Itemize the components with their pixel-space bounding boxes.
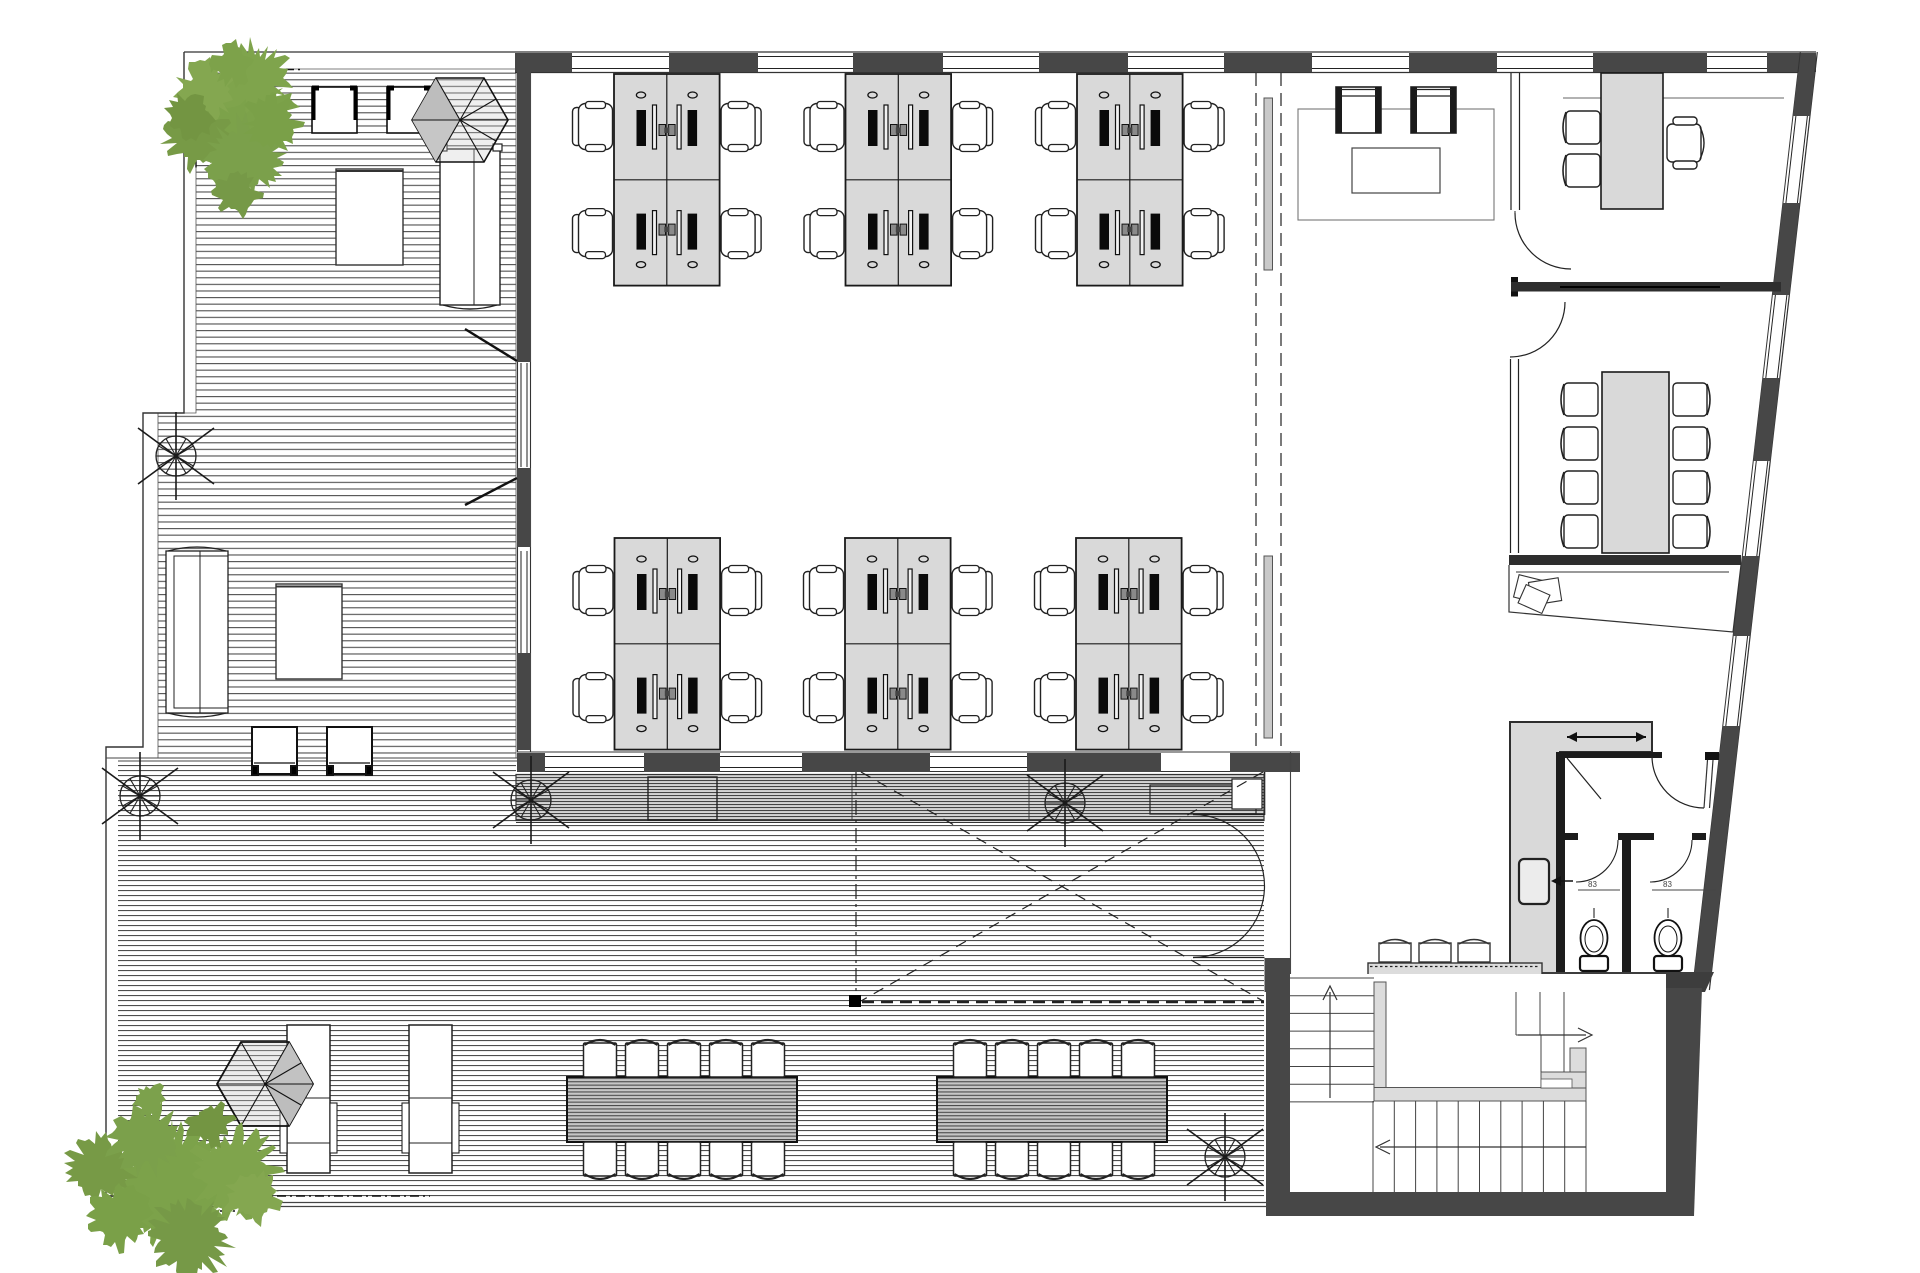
svg-text:83: 83: [1588, 880, 1597, 889]
svg-text:83: 83: [1663, 880, 1672, 889]
